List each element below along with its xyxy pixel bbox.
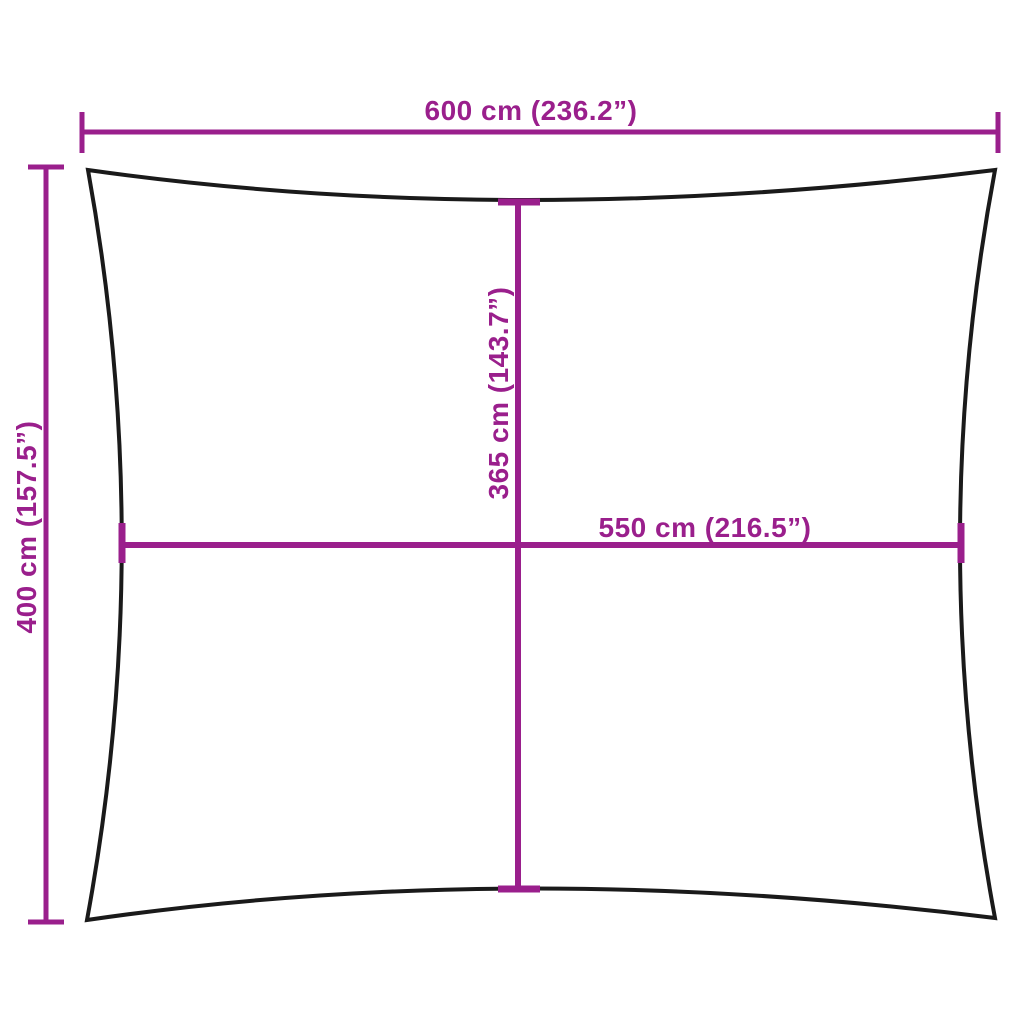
dimension-label-left-height: 400 cm (157.5”)	[11, 421, 42, 634]
dimension-label-center-width: 550 cm (216.5”)	[599, 512, 812, 543]
dimension-diagram: 600 cm (236.2”) 400 cm (157.5”) 365 cm (…	[0, 0, 1024, 1024]
dimension-label-top-width: 600 cm (236.2”)	[425, 95, 638, 126]
dimension-label-center-height: 365 cm (143.7”)	[483, 287, 514, 500]
dimension-top-width: 600 cm (236.2”)	[82, 95, 998, 153]
dimension-diagram-canvas: 600 cm (236.2”) 400 cm (157.5”) 365 cm (…	[0, 0, 1024, 1024]
dimension-center-width: 550 cm (216.5”)	[122, 512, 961, 563]
dimension-left-height: 400 cm (157.5”)	[11, 167, 64, 922]
